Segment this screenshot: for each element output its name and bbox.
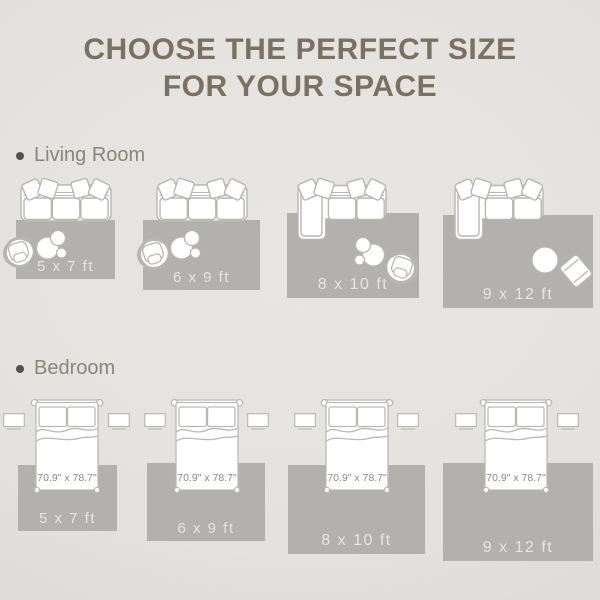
nightstand-icon: [144, 413, 166, 430]
sofa-icon: [156, 177, 248, 223]
section-label-bedroom: Bedroom: [16, 357, 115, 380]
rug-size-label: 9 x 12 ft: [443, 286, 593, 304]
nightstand-icon: [397, 413, 419, 430]
nesting-tables-icon: [36, 229, 67, 260]
rug-size-label: 8 x 10 ft: [288, 532, 425, 550]
section-label-text: Bedroom: [34, 357, 115, 380]
section-label-living-room: Living Room: [16, 144, 145, 167]
bed-icon: [30, 399, 104, 493]
rug-size-label: 6 x 9 ft: [147, 520, 265, 537]
rug-size-infographic: 70.9" x 78.7" CHOOSE THE PERFECT SIZE FO…: [0, 0, 600, 600]
nightstand-icon: [455, 413, 477, 430]
sectional-sofa-icon: [296, 177, 388, 241]
rug-size-label: 6 x 9 ft: [143, 269, 260, 286]
nightstand-icon: [294, 413, 316, 430]
nightstand-icon: [3, 413, 25, 430]
sofa-icon: [20, 177, 112, 223]
bullet-icon: [16, 152, 24, 160]
bed-icon: [479, 399, 553, 493]
round-chair-icon: [136, 237, 170, 271]
title-line-1: CHOOSE THE PERFECT SIZE: [83, 33, 516, 66]
bullet-icon: [16, 365, 24, 373]
nesting-tables-icon: [352, 236, 385, 269]
nightstand-icon: [247, 413, 269, 430]
rug-size-label: 5 x 7 ft: [18, 510, 117, 527]
page-title: CHOOSE THE PERFECT SIZE FOR YOUR SPACE: [0, 31, 600, 105]
round-table-icon: [531, 246, 559, 274]
title-line-2: FOR YOUR SPACE: [163, 70, 437, 103]
rug-size-label: 9 x 12 ft: [443, 539, 593, 557]
nightstand-icon: [108, 413, 130, 430]
round-chair-icon: [2, 236, 35, 269]
round-chair-icon: [385, 251, 419, 285]
sectional-sofa-icon: [453, 177, 545, 241]
section-label-text: Living Room: [34, 144, 145, 167]
lounge-chair-icon: [559, 254, 591, 288]
bed-icon: [170, 399, 244, 493]
bed-icon: [320, 399, 394, 493]
nightstand-icon: [557, 413, 579, 430]
nesting-tables-icon: [170, 229, 203, 262]
